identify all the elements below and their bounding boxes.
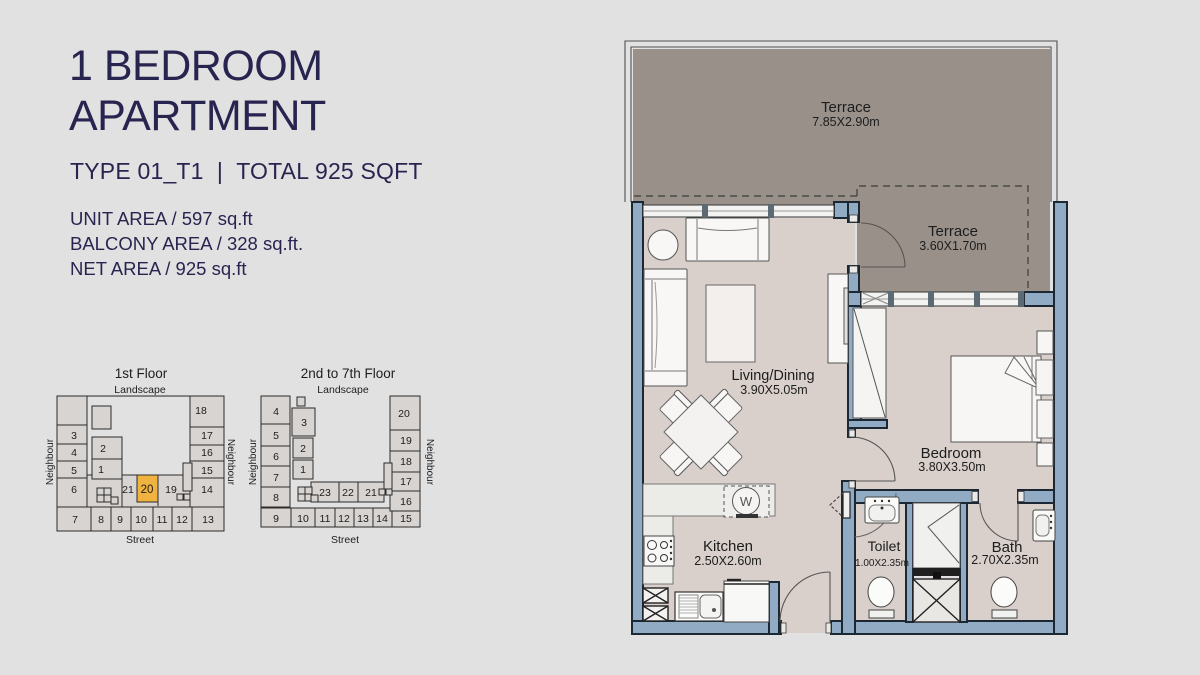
svg-text:6: 6 xyxy=(71,484,77,496)
svg-text:7: 7 xyxy=(273,472,279,484)
svg-text:9: 9 xyxy=(117,514,123,526)
svg-text:2nd to 7th Floor: 2nd to 7th Floor xyxy=(301,366,396,381)
svg-text:22: 22 xyxy=(342,487,354,499)
svg-text:4: 4 xyxy=(71,447,77,459)
svg-text:1: 1 xyxy=(98,464,104,476)
svg-text:18: 18 xyxy=(195,405,207,417)
svg-text:9: 9 xyxy=(273,513,279,525)
svg-text:20: 20 xyxy=(398,408,410,420)
svg-text:Toilet: Toilet xyxy=(868,538,901,554)
svg-text:Terrace: Terrace xyxy=(928,223,978,240)
svg-text:Neighbour: Neighbour xyxy=(248,438,259,485)
svg-text:3: 3 xyxy=(301,417,307,429)
svg-text:Street: Street xyxy=(126,534,154,546)
svg-text:11: 11 xyxy=(157,514,168,526)
svg-text:8: 8 xyxy=(273,492,279,504)
svg-text:2: 2 xyxy=(300,443,306,455)
svg-text:Living/Dining: Living/Dining xyxy=(731,368,814,384)
svg-text:14: 14 xyxy=(201,484,213,496)
svg-text:17: 17 xyxy=(400,476,412,488)
svg-text:Landscape: Landscape xyxy=(317,384,369,396)
svg-text:1: 1 xyxy=(300,464,306,476)
svg-text:21: 21 xyxy=(122,484,134,496)
svg-text:Street: Street xyxy=(331,534,359,546)
svg-text:10: 10 xyxy=(135,514,147,526)
svg-text:3.90X5.05m: 3.90X5.05m xyxy=(740,383,807,397)
svg-text:11: 11 xyxy=(320,513,331,525)
svg-text:Neighbour: Neighbour xyxy=(424,439,435,486)
svg-text:15: 15 xyxy=(400,513,412,525)
svg-text:19: 19 xyxy=(400,435,412,447)
svg-text:3.60X1.70m: 3.60X1.70m xyxy=(919,239,986,253)
svg-text:19: 19 xyxy=(165,484,177,496)
svg-text:13: 13 xyxy=(202,514,214,526)
svg-text:Kitchen: Kitchen xyxy=(703,538,753,555)
svg-text:18: 18 xyxy=(400,456,412,468)
svg-text:12: 12 xyxy=(338,513,350,525)
svg-text:8: 8 xyxy=(98,514,104,526)
svg-text:6: 6 xyxy=(273,451,279,463)
svg-text:1.00X2.35m: 1.00X2.35m xyxy=(855,558,909,569)
svg-text:2.70X2.35m: 2.70X2.35m xyxy=(971,553,1038,567)
svg-text:3.80X3.50m: 3.80X3.50m xyxy=(918,460,985,474)
svg-text:1st Floor: 1st Floor xyxy=(115,366,168,381)
svg-text:20: 20 xyxy=(141,484,154,496)
svg-text:16: 16 xyxy=(201,447,213,459)
svg-text:7: 7 xyxy=(72,514,78,526)
svg-text:5: 5 xyxy=(71,465,77,477)
svg-text:14: 14 xyxy=(376,513,388,525)
svg-text:4: 4 xyxy=(273,406,279,418)
svg-text:7.85X2.90m: 7.85X2.90m xyxy=(812,115,879,129)
svg-text:16: 16 xyxy=(400,496,412,508)
svg-text:Terrace: Terrace xyxy=(821,99,871,116)
svg-text:12: 12 xyxy=(176,514,188,526)
svg-text:15: 15 xyxy=(201,465,213,477)
svg-text:5: 5 xyxy=(273,430,279,442)
svg-text:Neighbour: Neighbour xyxy=(45,438,56,485)
svg-text:W: W xyxy=(740,494,753,509)
svg-text:2.50X2.60m: 2.50X2.60m xyxy=(694,554,761,568)
svg-text:21: 21 xyxy=(365,487,377,499)
svg-text:2: 2 xyxy=(100,443,106,455)
svg-text:3: 3 xyxy=(71,430,77,442)
svg-text:23: 23 xyxy=(319,487,331,499)
svg-text:10: 10 xyxy=(297,513,309,525)
svg-text:Landscape: Landscape xyxy=(114,384,166,396)
svg-text:Neighbour: Neighbour xyxy=(225,439,236,486)
svg-text:13: 13 xyxy=(357,513,369,525)
svg-text:17: 17 xyxy=(201,430,213,442)
